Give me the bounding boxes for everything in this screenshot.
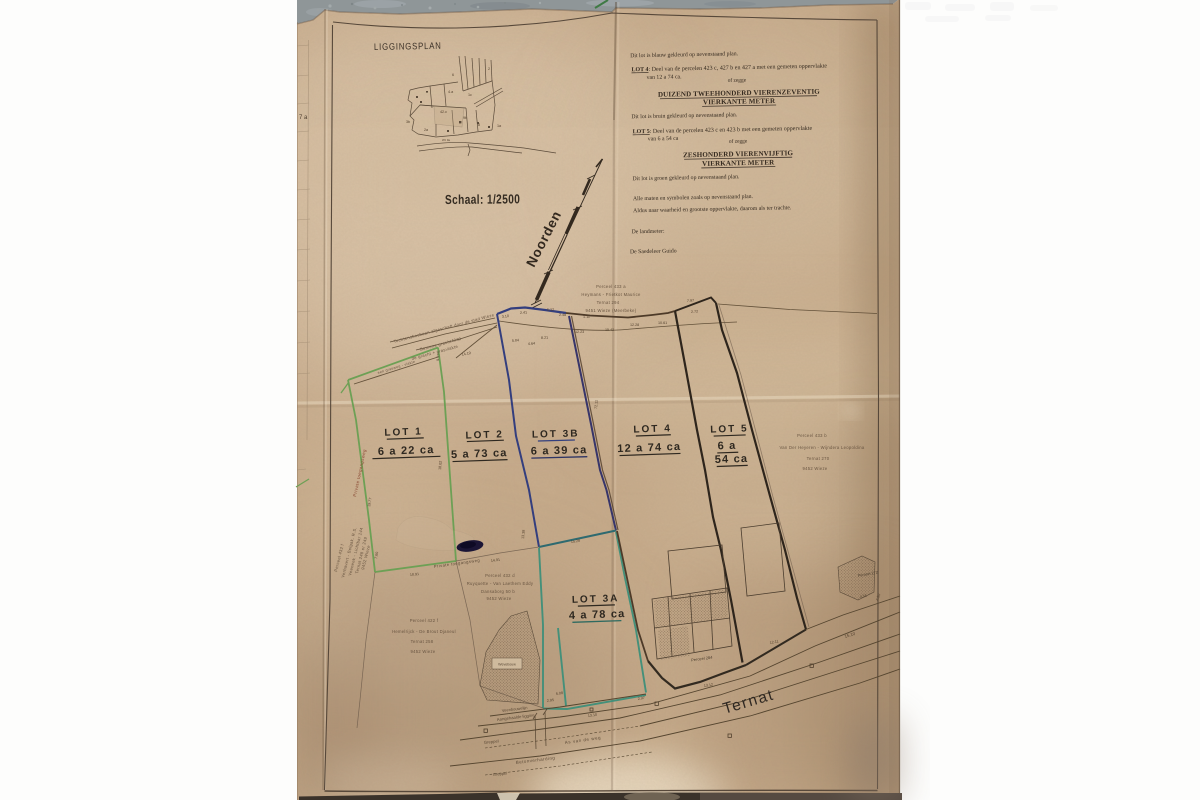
svg-text:LIGGINGSPLAN: LIGGINGSPLAN bbox=[374, 40, 442, 52]
svg-text:LOT 3A: LOT 3A bbox=[572, 593, 620, 606]
svg-text:2: 2 bbox=[488, 67, 490, 71]
svg-text:Perceel 433 a: Perceel 433 a bbox=[596, 284, 626, 289]
svg-text:of zegge: of zegge bbox=[728, 77, 747, 84]
svg-text:12 a 74 ca: 12 a 74 ca bbox=[617, 441, 681, 455]
svg-text:LOT 4: LOT 4 bbox=[633, 423, 672, 435]
svg-text:42.c: 42.c bbox=[440, 110, 447, 114]
svg-text:72.11: 72.11 bbox=[594, 400, 599, 409]
svg-text:LOT 3B: LOT 3B bbox=[532, 428, 580, 440]
svg-text:2.72: 2.72 bbox=[691, 310, 698, 314]
svg-text:10.61: 10.61 bbox=[658, 321, 667, 325]
svg-text:Ternat 258: Ternat 258 bbox=[411, 639, 434, 644]
svg-text:LOT 5: LOT 5 bbox=[710, 423, 749, 435]
svg-text:Hemelrijck - De Brout Djaneu: Hemelrijck - De Brout Djaneul bbox=[392, 629, 456, 634]
svg-text:Van Der Heyeren - Wijndera L: Van Der Heyeren - Wijndera Leopoldina bbox=[779, 445, 864, 450]
svg-text:Heymans - Frietkot Maurice: Heymans - Frietkot Maurice bbox=[581, 292, 641, 297]
svg-text:5 a 73 ca: 5 a 73 ca bbox=[451, 447, 508, 461]
svg-text:15.42: 15.42 bbox=[605, 328, 614, 332]
svg-text:54 ca: 54 ca bbox=[715, 453, 749, 466]
svg-text:Perceel 432 d: Perceel 432 d bbox=[485, 573, 515, 578]
svg-text:2.41: 2.41 bbox=[520, 311, 527, 315]
svg-text:De landmeter:: De landmeter: bbox=[632, 229, 665, 236]
svg-text:Perceel 433 b: Perceel 433 b bbox=[797, 433, 827, 438]
svg-text:LOT 1: LOT 1 bbox=[384, 426, 423, 438]
svg-text:4.64: 4.64 bbox=[528, 342, 535, 346]
svg-text:1.11: 1.11 bbox=[583, 315, 590, 319]
svg-text:van 12 a 74 ca.: van 12 a 74 ca. bbox=[647, 74, 683, 81]
svg-text:8: 8 bbox=[478, 123, 480, 127]
svg-text:9452 Wieze: 9452 Wieze bbox=[410, 649, 435, 654]
svg-text:Perceel 422 f: Perceel 422 f bbox=[410, 618, 439, 623]
svg-text:Schaal: 1/2500: Schaal: 1/2500 bbox=[445, 192, 520, 207]
svg-text:9.97: 9.97 bbox=[436, 354, 441, 362]
svg-text:Ruyquette - Van Laethem Eddy: Ruyquette - Van Laethem Eddy bbox=[467, 581, 534, 586]
svg-text:1c: 1c bbox=[468, 93, 472, 97]
svg-text:7 a: 7 a bbox=[299, 115, 308, 121]
svg-text:9452 Wieze: 9452 Wieze bbox=[802, 466, 827, 471]
svg-text:6: 6 bbox=[452, 73, 454, 77]
svg-text:9451 Wieze (Meerbeke): 9451 Wieze (Meerbeke) bbox=[586, 308, 637, 313]
svg-text:8.21: 8.21 bbox=[541, 336, 548, 340]
svg-text:6 a 22 ca: 6 a 22 ca bbox=[378, 444, 435, 458]
svg-text:LOT 2: LOT 2 bbox=[465, 429, 504, 441]
svg-text:6 a 39 ca: 6 a 39 ca bbox=[531, 444, 588, 457]
svg-text:2.48: 2.48 bbox=[559, 313, 566, 317]
svg-text:5.84: 5.84 bbox=[512, 338, 520, 343]
svg-text:9b: 9b bbox=[463, 116, 467, 120]
svg-text:12.23: 12.23 bbox=[575, 330, 584, 334]
svg-text:9452 Wieze: 9452 Wieze bbox=[486, 596, 511, 601]
svg-text:Ternat 270: Ternat 270 bbox=[807, 456, 830, 461]
svg-text:Ternat 294: Ternat 294 bbox=[597, 300, 620, 305]
svg-text:De Saedeleer Guido: De Saedeleer Guido bbox=[630, 248, 677, 255]
svg-text:18.02: 18.02 bbox=[438, 461, 443, 471]
svg-text:Wevebouw: Wevebouw bbox=[498, 663, 516, 667]
svg-text:7.97: 7.97 bbox=[687, 299, 694, 303]
svg-text:3b: 3b bbox=[406, 120, 410, 124]
svg-text:13.38: 13.38 bbox=[521, 530, 526, 540]
svg-text:of zegge: of zegge bbox=[729, 138, 748, 145]
svg-text:4 a 78 ca: 4 a 78 ca bbox=[569, 608, 626, 622]
svg-text:5.12: 5.12 bbox=[547, 308, 554, 312]
svg-text:6 a: 6 a bbox=[717, 440, 736, 453]
svg-text:12.28: 12.28 bbox=[630, 323, 639, 327]
svg-text:van 6 a 54 ca: van 6 a 54 ca bbox=[648, 136, 679, 143]
svg-text:Wz 9a: Wz 9a bbox=[442, 138, 450, 142]
svg-text:Dansaborg 50 b: Dansaborg 50 b bbox=[481, 589, 515, 594]
